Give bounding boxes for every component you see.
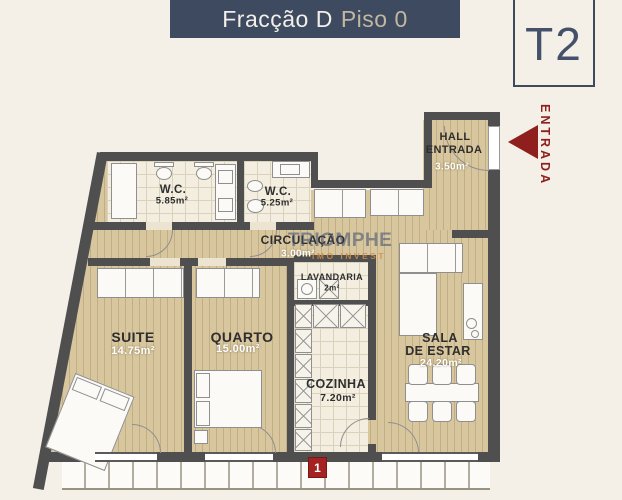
door-gap-wc1 [146,222,172,230]
entrance-door-opening [488,126,500,170]
cozinha-name: COZINHA [306,377,366,391]
hall-area: 3.50m² [435,162,469,173]
sala-area: 24.20m² [420,357,462,369]
kitchen-cabinet [295,329,312,353]
wall-hall-bottom [452,230,488,238]
washer-drum-icon [301,283,313,295]
window-quarto [205,452,273,462]
floor-title: Piso 0 [341,6,408,33]
suite-closet [97,268,184,298]
shower-fixture [111,163,137,219]
sala-name-line2: DE ESTAR [405,344,470,358]
hall-closet [370,189,424,216]
suite-area: 14.75m² [111,345,155,357]
kitchen-cabinet [295,354,312,378]
sofa-left-arm [399,273,437,336]
toilet-fixture [156,167,172,180]
window-sala [382,452,478,462]
door-gap-quarto [198,258,226,266]
window-suite [95,452,157,462]
wc1-area: 5.85m² [156,196,189,207]
wall-notch [311,180,432,188]
dining-chair [408,401,428,422]
pillow [196,373,210,398]
wall-wc-bottom [88,222,314,230]
wall-right-stub [488,112,500,126]
hall-name-line2: ENTRADA [426,144,483,156]
entrance-label: ENTRADA [538,104,552,244]
balcony-strip [62,462,490,490]
wc1-name: W.C. [160,184,187,196]
island-sink-icon [466,318,477,329]
kitchen-cabinet [313,304,339,328]
unit-number-badge: 1 [308,457,327,478]
wall-wc-divider [237,152,244,225]
sala-name-line1: SALA [422,331,458,345]
circulacao-name: CIRCULAÇÃO [261,233,346,247]
nightstand [194,430,208,444]
lavandaria-name: LAVANDARIA [301,272,363,282]
island-sink-icon [471,330,479,338]
hall-closet [314,189,366,218]
lavandaria-area: 2m² [324,284,339,293]
kitchen-cabinet [295,429,312,451]
sink-fixture [218,170,233,184]
quarto-area: 15.00m² [216,343,260,355]
wall-suite-quarto [184,266,192,456]
wall-top [100,152,318,161]
wc2-name: W.C. [265,186,292,198]
entrance-arrow-icon [508,125,538,159]
circulacao-area: 3.00m² [281,249,315,260]
dining-chair [456,401,476,422]
kitchen-cabinet [295,304,312,328]
kitchen-cabinet [295,404,312,428]
sofa-top-arm [399,243,463,273]
wall-right [488,170,500,462]
hall-name-line1: HALL [440,131,471,143]
toilet-fixture [196,167,212,180]
bidet-fixture [247,180,263,192]
wall-kitchen-sala [368,255,376,420]
cozinha-area: 7.20m² [320,392,356,404]
door-gap-suite [150,258,180,266]
sink-fixture [218,198,233,212]
suite-name: SUITE [111,329,154,345]
dining-table [405,383,479,402]
typology-badge: T2 [513,0,595,87]
title-bar: Fracção D Piso 0 [170,0,460,38]
wc2-area: 5.25m² [261,198,294,209]
dining-chair [432,401,452,422]
sink-fixture [280,164,300,175]
kitchen-cabinet [340,304,366,328]
quarto-wardrobe [196,268,260,298]
pillow [196,401,210,426]
door-gap-wc2 [250,222,276,230]
wall-quarto-kitchen [287,258,294,456]
floorplan-page: Fracção D Piso 0 T2 ENTRADA [0,0,622,500]
fraction-title: Fracção D [222,6,333,33]
